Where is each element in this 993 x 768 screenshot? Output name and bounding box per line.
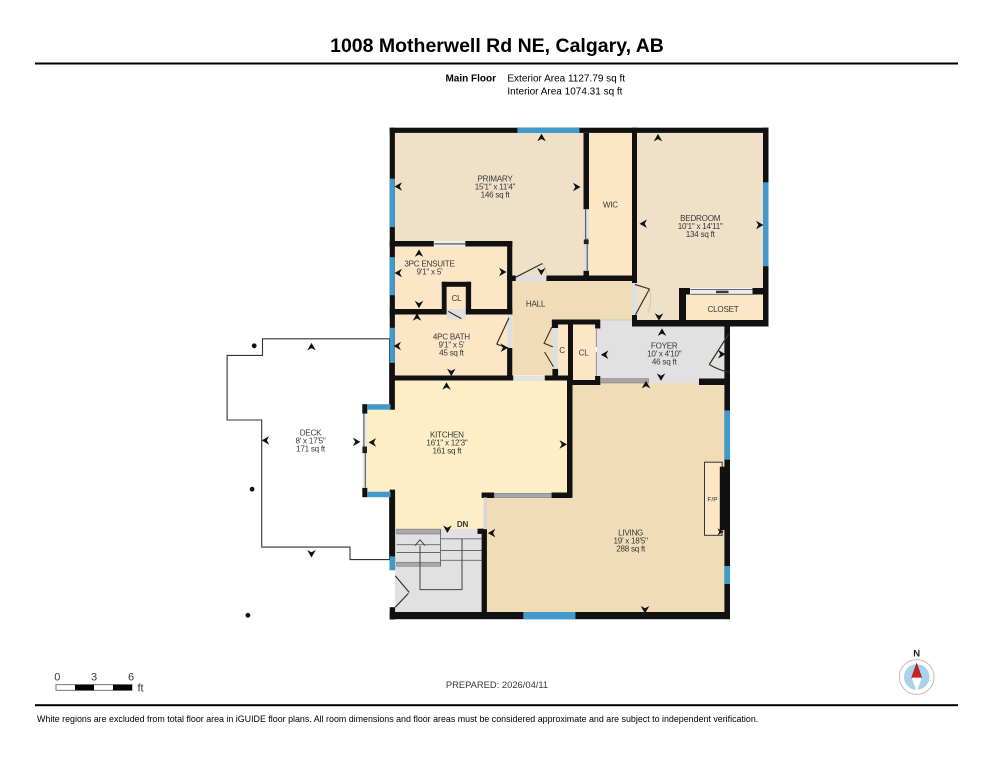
svg-text:9'1" x 5': 9'1" x 5' <box>417 268 443 277</box>
svg-text:134 sq ft: 134 sq ft <box>686 230 716 239</box>
svg-text:3: 3 <box>91 671 97 683</box>
svg-text:C: C <box>559 346 565 355</box>
svg-text:ft: ft <box>138 682 144 694</box>
svg-text:Interior Area 1074.31 sq ft: Interior Area 1074.31 sq ft <box>507 86 622 97</box>
svg-text:CL: CL <box>452 294 463 303</box>
svg-text:46 sq ft: 46 sq ft <box>652 358 678 367</box>
svg-text:45 sq ft: 45 sq ft <box>439 349 465 358</box>
svg-text:161 sq ft: 161 sq ft <box>432 446 462 455</box>
svg-text:White regions are excluded fro: White regions are excluded from total fl… <box>37 714 758 724</box>
svg-text:Main Floor: Main Floor <box>445 74 496 85</box>
svg-text:6: 6 <box>128 671 134 683</box>
svg-text:DN: DN <box>457 520 469 529</box>
svg-text:1008 Motherwell Rd NE, Calgary: 1008 Motherwell Rd NE, Calgary, AB <box>330 35 664 57</box>
svg-text:WIC: WIC <box>603 201 618 210</box>
svg-text:146 sq ft: 146 sq ft <box>481 191 511 200</box>
svg-text:288 sq ft: 288 sq ft <box>616 545 646 554</box>
svg-text:0: 0 <box>54 671 60 683</box>
svg-text:N: N <box>913 649 920 660</box>
svg-text:Exterior Area 1127.79 sq ft: Exterior Area 1127.79 sq ft <box>507 74 625 85</box>
svg-text:CLOSET: CLOSET <box>708 305 739 314</box>
svg-text:PREPARED: 2026/04/11: PREPARED: 2026/04/11 <box>446 679 548 690</box>
svg-text:HALL: HALL <box>526 300 546 309</box>
svg-text:171 sq ft: 171 sq ft <box>296 445 326 454</box>
svg-text:CL: CL <box>579 349 590 358</box>
svg-text:F/P: F/P <box>707 497 718 504</box>
